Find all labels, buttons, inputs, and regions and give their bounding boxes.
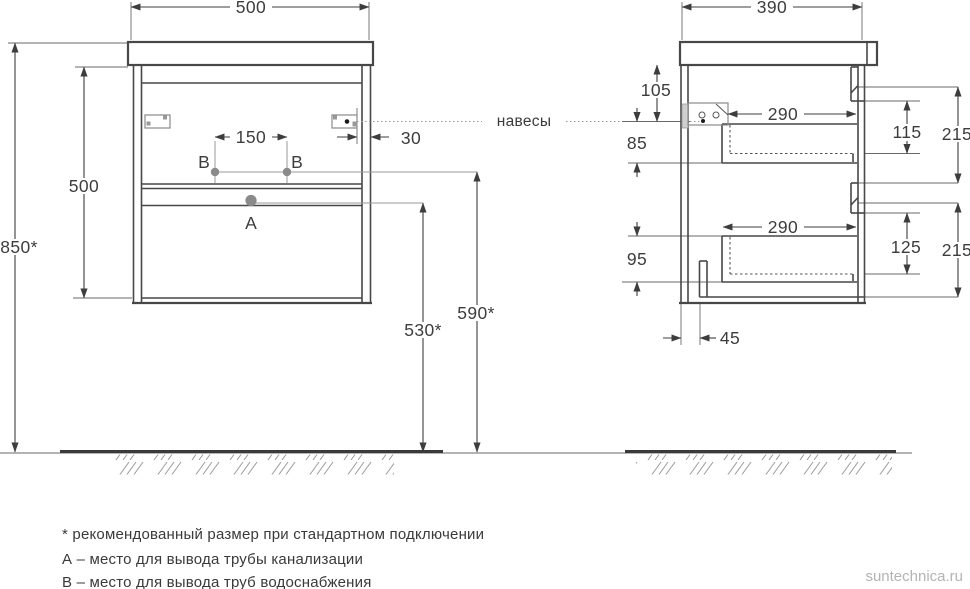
dim-front-bottom: 215: [942, 240, 970, 260]
dim-hinge-offset: 30: [401, 128, 421, 148]
hole-b-right: [283, 168, 291, 176]
dim-total-height: 850*: [0, 237, 38, 257]
pipe-hole-markers: [211, 141, 477, 206]
side-dimensions: [637, 7, 958, 338]
front-dimension-labels: 500 150 30 500 850* 530* 590* В В А: [0, 0, 496, 340]
front-extension-lines: [8, 2, 369, 298]
note-supply-b: В – место для вывода труб водоснабжения: [62, 574, 372, 589]
vanity-dimension-drawing: 500 150 30 500 850* 530* 590* В В А наве…: [0, 0, 970, 589]
legend-notes: * рекомендованный размер при стандартном…: [62, 526, 484, 589]
dim-bottom-gap: 95: [627, 249, 647, 269]
dim-front-top: 215: [942, 124, 970, 144]
dim-drawer-top-depth: 290: [768, 104, 798, 124]
side-view: 390 105 85 95 290 290 115 215 125 215 45: [622, 0, 970, 348]
hangers-label: навесы: [497, 113, 552, 130]
note-drain-a: А – место для вывода трубы канализации: [62, 551, 363, 568]
ground-line: [0, 452, 912, 475]
dim-drawer-bottom-depth: 290: [768, 217, 798, 237]
hole-b-left: [211, 168, 219, 176]
drain-pipe: [700, 261, 708, 297]
side-dimension-labels: 390 105 85 95 290 290 115 215 125 215 45: [627, 0, 970, 348]
dim-holes-spacing: 150: [236, 127, 266, 147]
wall-hanger-detail: [682, 103, 728, 128]
label-hole-b-right: В: [291, 152, 303, 172]
drawer-box-top: [722, 124, 857, 163]
label-hole-a: А: [245, 213, 257, 233]
watermark: suntechnica.ru: [865, 568, 963, 585]
label-hole-b-left: В: [198, 152, 210, 172]
note-recommended-size: * рекомендованный размер при стандартном…: [62, 526, 484, 543]
dim-hanger-drop: 85: [627, 133, 647, 153]
drawer-box-bottom: [722, 236, 857, 282]
dim-top-gap: 105: [641, 80, 671, 100]
side-extension-lines: [622, 2, 958, 345]
side-carcass: [679, 42, 877, 303]
hanger-plate-left: [145, 115, 170, 128]
dim-drain-height: 530*: [404, 320, 442, 340]
ground-hatch-left: [108, 455, 394, 475]
ground-hatch-right: [636, 455, 892, 475]
technical-drawing-page: 500 150 30 500 850* 530* 590* В В А наве…: [0, 0, 970, 589]
dim-pipe-offset: 45: [720, 328, 740, 348]
dim-depth: 390: [757, 0, 787, 17]
dim-supply-height: 590*: [457, 303, 495, 323]
dim-carcass-height: 500: [69, 176, 99, 196]
front-view: 500 150 30 500 850* 530* 590* В В А: [0, 0, 496, 452]
hole-a: [245, 195, 256, 206]
dim-front-width: 500: [236, 0, 266, 17]
dim-inner-top: 115: [892, 122, 921, 142]
hanger-plate-right: [332, 115, 358, 128]
dim-inner-bottom: 125: [891, 237, 921, 257]
